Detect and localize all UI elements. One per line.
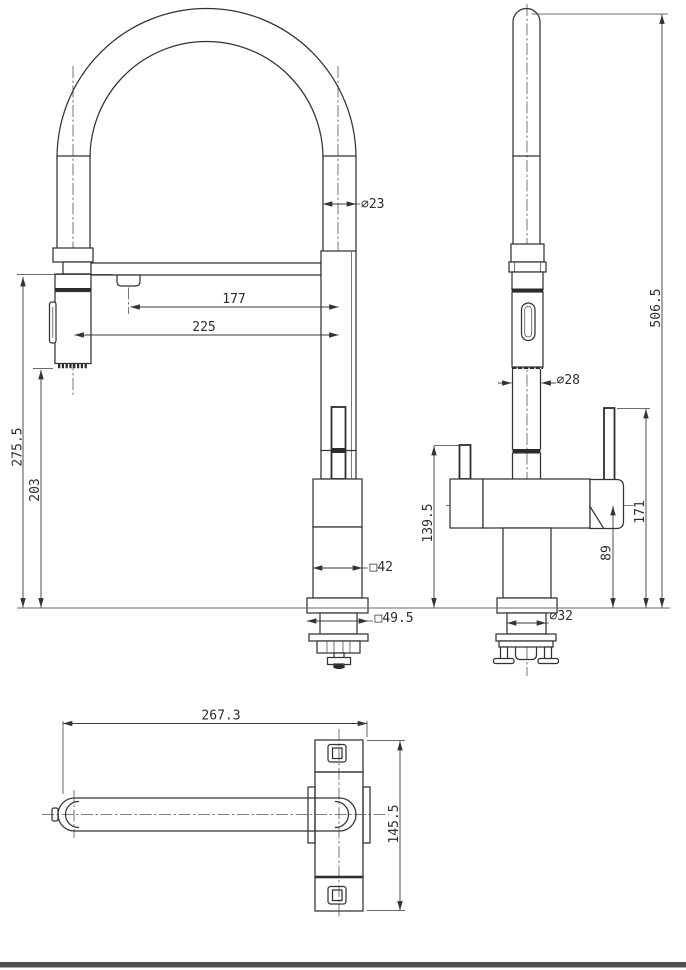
spout-bar: [75, 262, 331, 287]
handle-joint-band: [332, 448, 346, 453]
column-seam-lower: [513, 449, 541, 454]
faucet-body-front: [307, 479, 368, 613]
side-body-endcap: [590, 480, 624, 529]
faucet-column: [321, 251, 356, 479]
top-handle-socket-upper: [328, 745, 346, 763]
top-dimensions: 267.3 145.5: [63, 709, 405, 911]
dim-body-width: □42: [370, 560, 393, 575]
dim-spray-reach: 225: [192, 320, 215, 335]
dim-base-width: □49.5: [375, 611, 414, 626]
dim-shank-diameter: ⌀32: [550, 609, 573, 624]
top-left-tab: [308, 787, 315, 843]
top-view: 267.3 145.5: [42, 709, 405, 920]
dim-overall-height: 506.5: [649, 288, 664, 327]
base-flange-side: [497, 598, 557, 613]
side-right-handle: [604, 408, 615, 480]
spout-bar-nub: [117, 275, 140, 286]
dim-right-handle-height: 171: [633, 500, 648, 523]
spray-hose-arch: [57, 8, 356, 251]
side-view: 506.5 ⌀28 139.5 171 89 ⌀32: [421, 4, 668, 676]
faucet-technical-drawing: ⌀23 177 225 275.5 203 □42 □49.5: [0, 0, 686, 970]
dim-left-handle-height: 139.5: [421, 503, 436, 542]
dim-hose-diameter: ⌀23: [361, 197, 384, 212]
technical-drawing-page: ⌀23 177 225 275.5 203 □42 □49.5: [0, 0, 686, 970]
spray-head: [50, 248, 94, 366]
dim-body-center-height: 89: [600, 545, 615, 561]
dim-overall-length: 267.3: [201, 709, 240, 724]
dim-spray-outlet-height: 203: [28, 478, 43, 501]
dim-spout-reach: 177: [222, 292, 245, 307]
front-view: ⌀23 177 225 275.5 203 □42 □49.5: [11, 8, 414, 669]
top-right-tab: [363, 787, 370, 843]
dim-overall-depth: 145.5: [387, 804, 402, 843]
front-centerlines: [73, 66, 338, 669]
top-handle-socket-lower: [328, 887, 346, 905]
front-handle-lever: [332, 407, 346, 479]
footer-bar: [0, 962, 686, 968]
mounting-nut-tip: [334, 664, 345, 669]
dim-spout-height: 275.5: [11, 427, 26, 466]
side-column: [509, 9, 546, 480]
side-body: [450, 408, 624, 613]
side-left-handle: [460, 445, 471, 479]
dim-column-diameter: ⌀28: [557, 373, 580, 388]
base-flange-front: [307, 598, 368, 613]
